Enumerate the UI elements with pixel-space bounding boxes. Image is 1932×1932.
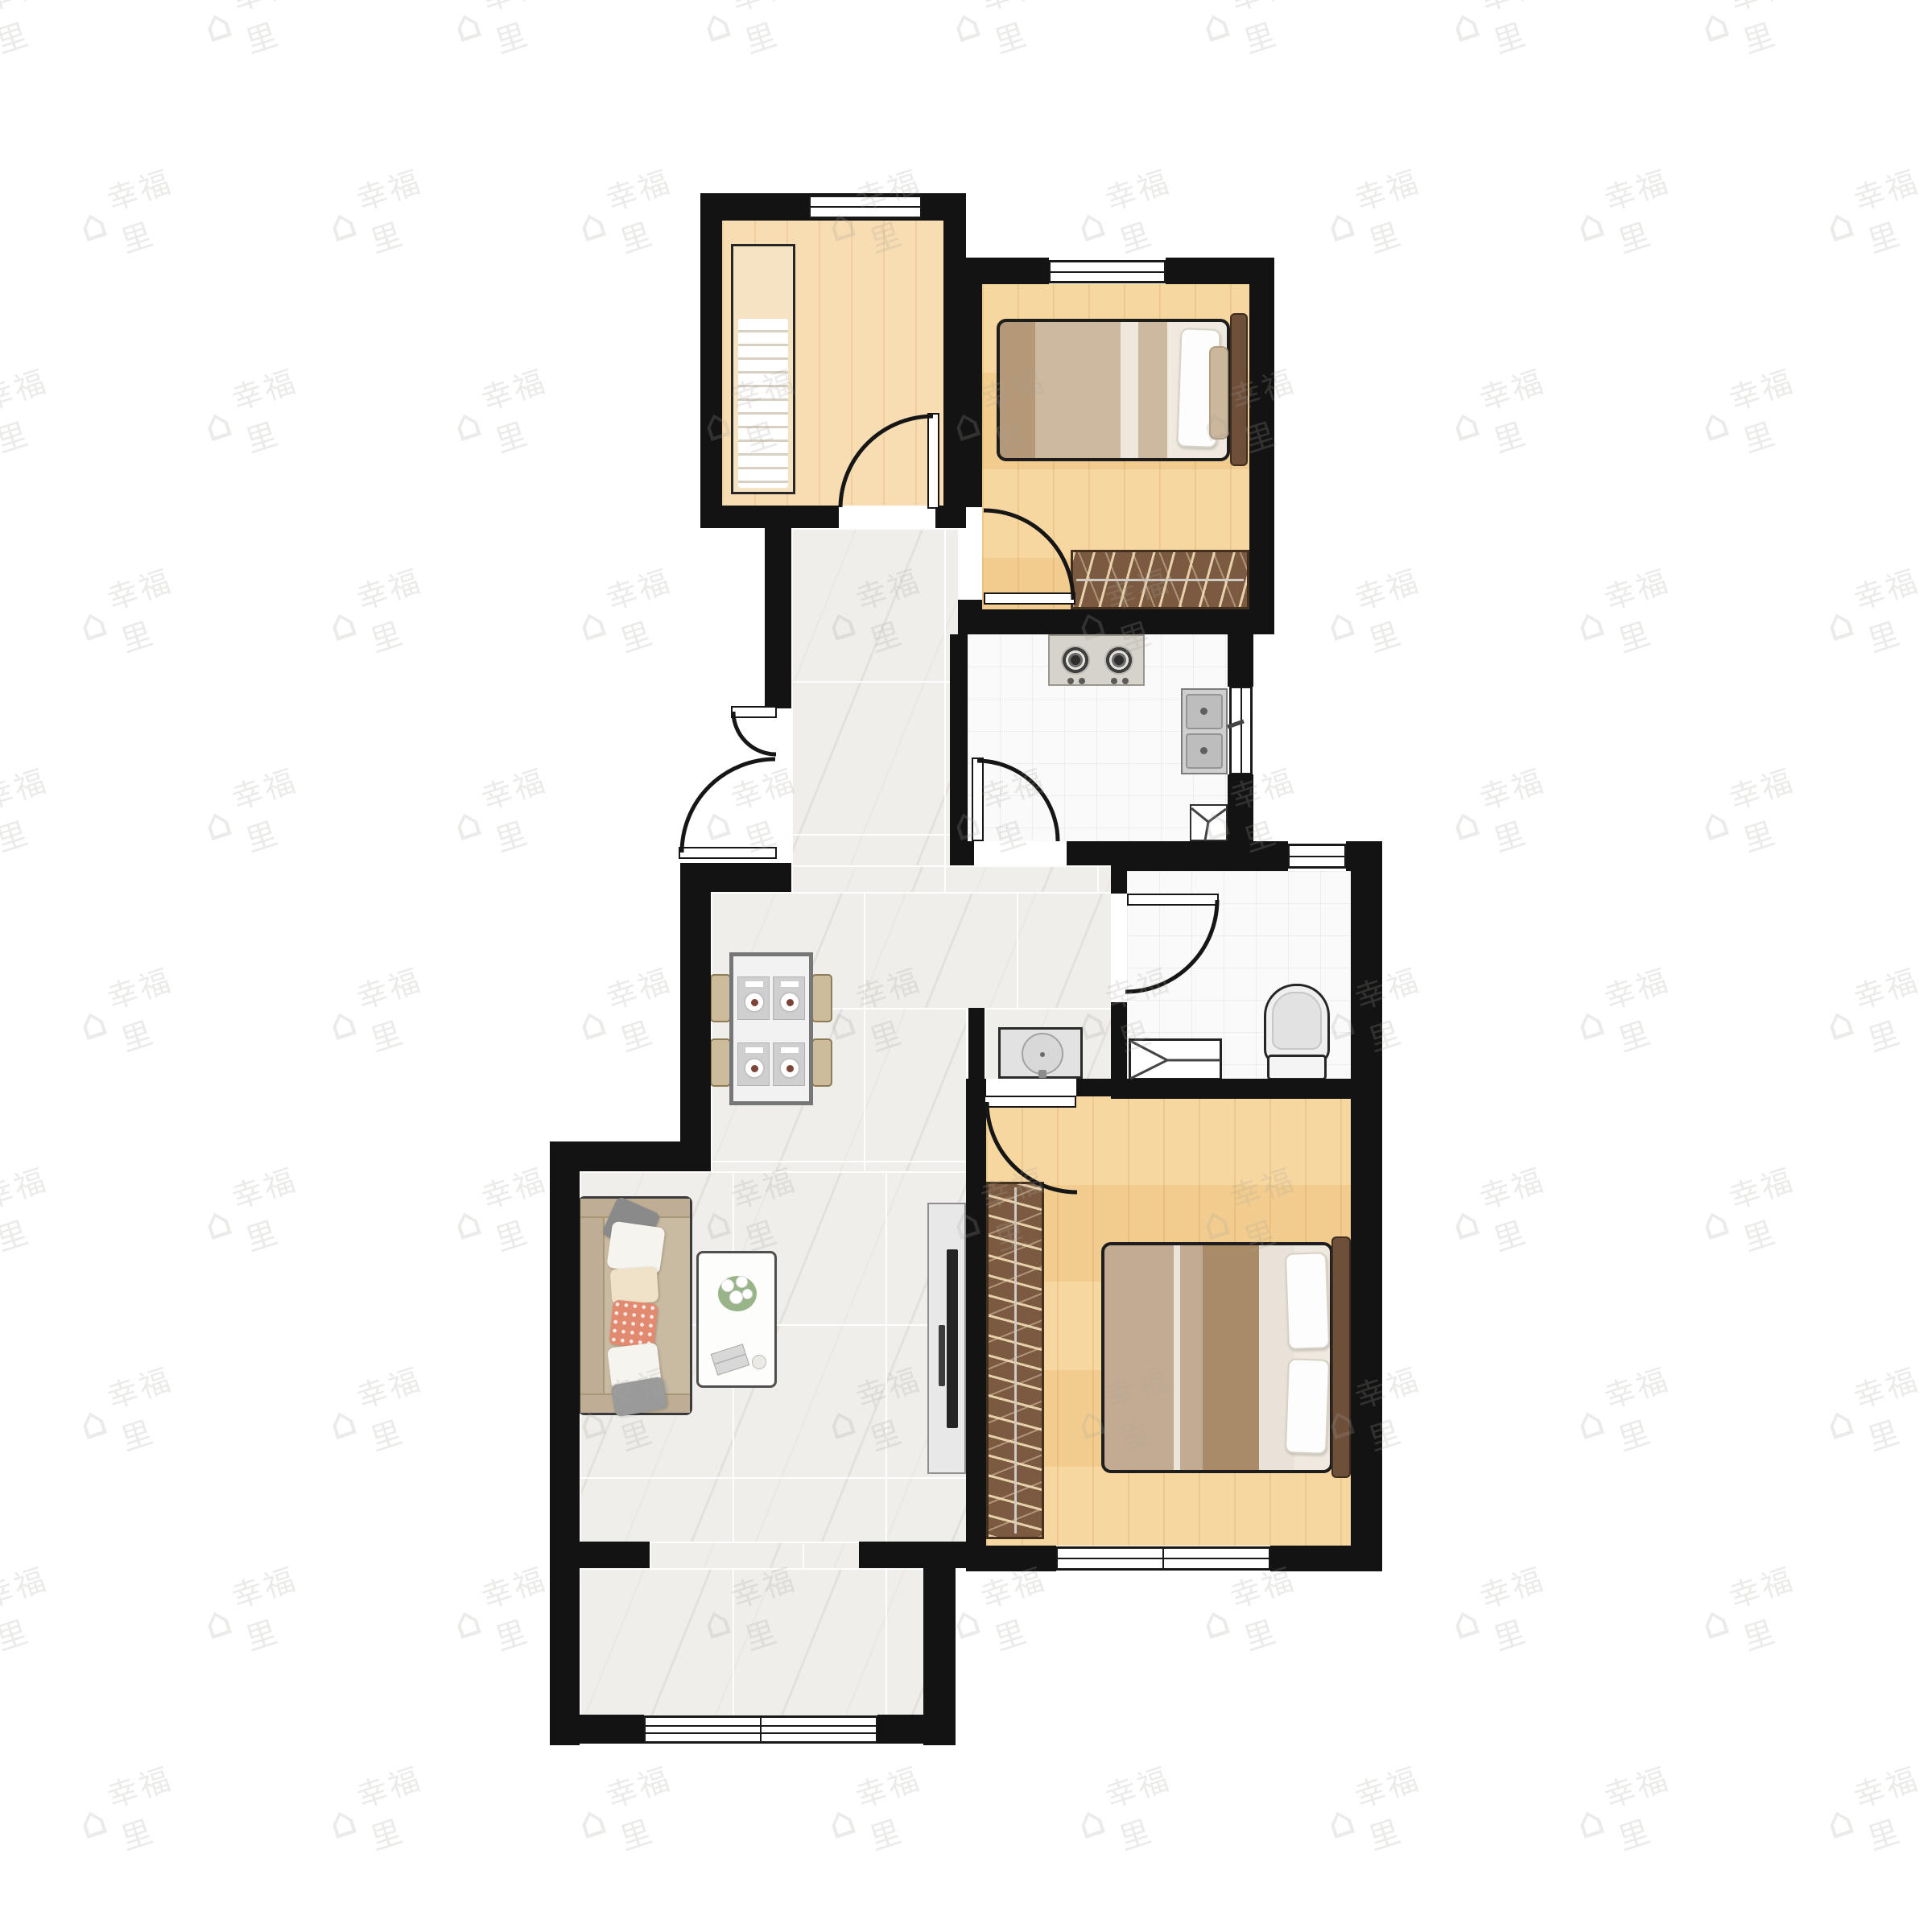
house-icon: ⌂ — [1197, 2, 1235, 50]
kitchen-window — [1229, 687, 1253, 774]
house-icon: ⌂ — [1696, 1199, 1734, 1248]
sink-drain — [1200, 747, 1207, 754]
sink-drain — [1200, 708, 1207, 715]
wall — [1270, 1546, 1382, 1571]
watermark-text: 幸福里 — [101, 151, 209, 261]
house-icon: ⌂ — [199, 1199, 237, 1248]
watermark-text: 幸福里 — [225, 1548, 334, 1658]
watermark: ⌂幸福里 — [1439, 1548, 1579, 1662]
gas-stove — [1048, 634, 1145, 686]
watermark-text: 幸福里 — [600, 1748, 708, 1858]
watermark: ⌂幸福里 — [192, 1149, 332, 1262]
bed-bottom-pillow — [1285, 1252, 1330, 1350]
watermark: ⌂幸福里 — [67, 1748, 207, 1861]
watermark: ⌂幸福里 — [566, 550, 706, 663]
plate-food — [751, 999, 758, 1006]
watermark: ⌂幸福里 — [0, 350, 82, 464]
dining-chair — [710, 974, 731, 1022]
house-icon: ⌂ — [324, 201, 361, 250]
watermark: ⌂幸福里 — [0, 0, 82, 65]
house-icon: ⌂ — [1072, 201, 1110, 250]
watermark-text: 幸福里 — [1847, 151, 1932, 261]
house-icon: ⌂ — [1696, 800, 1734, 848]
watermark-text: 幸福里 — [1598, 550, 1707, 660]
house-icon: ⌂ — [199, 800, 237, 848]
kitchen-sink — [1181, 688, 1228, 774]
watermark-text: 幸福里 — [350, 151, 459, 261]
toilet-tank — [1267, 1055, 1327, 1080]
watermark: ⌂幸福里 — [441, 749, 581, 863]
wall — [765, 528, 791, 708]
house-icon: ⌂ — [448, 1599, 486, 1647]
placemat — [773, 1042, 805, 1086]
kitchen-corner-cabinet — [1190, 804, 1228, 841]
watermark: ⌂幸福里 — [67, 949, 207, 1063]
wall — [1351, 1079, 1382, 1571]
wall — [700, 506, 839, 528]
placemat — [737, 1042, 770, 1086]
watermark-text: 幸福里 — [1099, 1748, 1207, 1858]
house-icon: ⌂ — [199, 2, 237, 50]
watermark: ⌂幸福里 — [1439, 350, 1579, 464]
watermark-text: 幸福里 — [849, 1748, 958, 1858]
placemat — [773, 976, 805, 1020]
hallway-floor — [791, 528, 958, 865]
watermark-text: 幸福里 — [724, 0, 833, 62]
napkin — [780, 980, 799, 988]
sofa — [578, 1196, 692, 1415]
house-icon: ⌂ — [448, 800, 486, 848]
coffee-table — [696, 1251, 777, 1388]
house-icon: ⌂ — [1322, 201, 1360, 250]
toilet-seat — [1272, 992, 1322, 1050]
house-icon: ⌂ — [1571, 1399, 1609, 1447]
flower — [721, 1279, 734, 1292]
house-icon: ⌂ — [947, 2, 985, 50]
bed-top-headboard — [1230, 313, 1248, 466]
wall — [966, 1079, 986, 1571]
watermark-text: 幸福里 — [350, 949, 459, 1059]
watermark: ⌂幸福里 — [1315, 550, 1455, 663]
bedroom-top-wardrobe — [1071, 550, 1249, 609]
watermark-text: 幸福里 — [475, 350, 584, 460]
dining-chair — [811, 974, 832, 1022]
watermark: ⌂幸福里 — [67, 1348, 207, 1462]
napkin — [745, 1046, 764, 1054]
watermark: ⌂幸福里 — [1065, 1748, 1205, 1861]
sofa-pillow-coral — [609, 1299, 658, 1349]
wall — [859, 1542, 966, 1568]
shower-tray — [1129, 1038, 1222, 1080]
watermark: ⌂幸福里 — [316, 949, 456, 1063]
flower — [742, 1289, 753, 1299]
watermark: ⌂幸福里 — [1564, 1748, 1704, 1861]
watermark: ⌂幸福里 — [0, 749, 82, 863]
house-icon: ⌂ — [1571, 201, 1609, 250]
sofa-pillow-white — [606, 1221, 665, 1275]
watermark: ⌂幸福里 — [316, 550, 456, 663]
watermark: ⌂幸福里 — [1564, 550, 1704, 663]
watermark-text: 幸福里 — [1598, 1748, 1707, 1858]
watermark-text: 幸福里 — [600, 550, 708, 660]
watermark-text: 幸福里 — [350, 1748, 459, 1858]
house-icon: ⌂ — [199, 401, 237, 449]
plate-food — [786, 999, 794, 1006]
flower — [736, 1276, 748, 1288]
wall — [966, 1546, 1056, 1571]
wall — [935, 506, 964, 528]
watermark: ⌂幸福里 — [192, 749, 332, 863]
flower — [729, 1290, 743, 1304]
plate-food — [786, 1065, 794, 1072]
balcony-floor — [580, 1568, 923, 1715]
watermark: ⌂幸福里 — [1689, 350, 1829, 464]
study-window — [809, 195, 922, 219]
watermark: ⌂幸福里 — [1315, 151, 1455, 264]
tv-stand — [927, 1203, 966, 1474]
floorplan-canvas: ⌂幸福里⌂幸福里⌂幸福里⌂幸福里⌂幸福里⌂幸福里⌂幸福里⌂幸福里⌂幸福里⌂幸福里… — [0, 0, 1932, 1932]
watermark: ⌂幸福里 — [192, 0, 332, 65]
watermark: ⌂幸福里 — [192, 1548, 332, 1662]
bedroom-bottom-wardrobe — [986, 1182, 1044, 1539]
house-icon: ⌂ — [1821, 201, 1859, 250]
watermark-text: 幸福里 — [1099, 151, 1207, 261]
house-icon: ⌂ — [1821, 1399, 1859, 1447]
watermark: ⌂幸福里 — [1689, 1548, 1829, 1662]
watermark: ⌂幸福里 — [67, 550, 207, 663]
house-icon: ⌂ — [1696, 401, 1734, 449]
wall — [1111, 841, 1288, 871]
watermark-text: 幸福里 — [475, 0, 584, 62]
watermark-text: 幸福里 — [101, 550, 209, 660]
watermark-text: 幸福里 — [1598, 1348, 1707, 1459]
wall — [1111, 871, 1127, 894]
watermark-text: 幸福里 — [1473, 350, 1582, 460]
stove-knob — [1067, 678, 1074, 684]
house-icon: ⌂ — [74, 1798, 112, 1847]
watermark-text: 幸福里 — [1723, 350, 1831, 460]
study-door — [927, 413, 939, 509]
watermark: ⌂幸福里 — [67, 151, 207, 264]
house-icon: ⌂ — [1072, 1798, 1110, 1847]
watermark-text: 幸福里 — [1348, 1748, 1457, 1858]
house-icon: ⌂ — [1821, 601, 1859, 649]
watermark: ⌂幸福里 — [1190, 0, 1330, 65]
watermark-text: 幸福里 — [0, 0, 85, 62]
watermark: ⌂幸福里 — [441, 0, 581, 65]
wardrobe-rail — [1014, 1187, 1017, 1534]
stove-burner — [1058, 642, 1093, 678]
study-wardrobe — [731, 244, 795, 494]
watermark: ⌂幸福里 — [0, 1548, 82, 1662]
bedroom-bottom-window — [1056, 1546, 1270, 1571]
watermark-text: 幸福里 — [1847, 949, 1932, 1059]
watermark: ⌂幸福里 — [1315, 1748, 1455, 1861]
watermark-text: 幸福里 — [1473, 749, 1582, 860]
house-icon: ⌂ — [1447, 401, 1484, 449]
watermark: ⌂幸福里 — [0, 1149, 82, 1262]
watermark: ⌂幸福里 — [566, 1748, 706, 1861]
watermark: ⌂幸福里 — [1564, 151, 1704, 264]
house-icon: ⌂ — [1571, 601, 1609, 649]
wall — [958, 609, 1274, 634]
watermark-text: 幸福里 — [101, 1348, 209, 1459]
watermark-text: 幸福里 — [1473, 0, 1582, 62]
bedroom-top-door — [984, 592, 1075, 605]
watermark-text: 幸福里 — [1348, 151, 1457, 261]
tv-soundbar — [939, 1325, 945, 1386]
watermark: ⌂幸福里 — [566, 151, 706, 264]
bedroom-top-window — [1049, 260, 1166, 283]
placemat — [737, 976, 770, 1020]
wall — [700, 193, 722, 528]
wall — [680, 863, 711, 1143]
wall — [968, 1008, 985, 1096]
house-icon: ⌂ — [74, 201, 112, 250]
wall — [950, 634, 968, 865]
house-icon: ⌂ — [1447, 2, 1484, 50]
house-icon: ⌂ — [1447, 1599, 1484, 1647]
house-icon: ⌂ — [1696, 2, 1734, 50]
watermark-text: 幸福里 — [0, 749, 85, 860]
wall — [950, 841, 974, 865]
watermark-text: 幸福里 — [1723, 1149, 1831, 1259]
wardrobe-rail — [1076, 579, 1244, 581]
watermark: ⌂幸福里 — [1814, 151, 1932, 264]
watermark: ⌂幸福里 — [1814, 1348, 1932, 1462]
bedroom-bottom-door — [984, 1096, 1076, 1108]
stove-knob — [1111, 678, 1117, 684]
watermark-text: 幸福里 — [101, 1748, 209, 1858]
book — [711, 1344, 750, 1376]
house-icon: ⌂ — [324, 1000, 361, 1048]
watermark-text: 幸福里 — [1847, 1748, 1932, 1858]
watermark: ⌂幸福里 — [1564, 949, 1704, 1063]
watermark: ⌂幸福里 — [940, 0, 1080, 65]
wall — [1076, 1079, 1382, 1096]
tv-screen — [947, 1249, 958, 1428]
watermark-text: 幸福里 — [0, 1149, 85, 1259]
house-icon: ⌂ — [573, 601, 611, 649]
watermark: ⌂幸福里 — [316, 1348, 456, 1462]
house-icon: ⌂ — [74, 601, 112, 649]
dining-table — [729, 952, 813, 1105]
watermark-text: 幸福里 — [0, 1548, 85, 1658]
wall — [1228, 634, 1253, 687]
watermark-text: 幸福里 — [225, 1149, 334, 1259]
watermark-text: 幸福里 — [1723, 0, 1831, 62]
watermark-text: 幸福里 — [1723, 749, 1831, 860]
watermark-text: 幸福里 — [1598, 949, 1707, 1059]
watermark: ⌂幸福里 — [316, 151, 456, 264]
wardrobe-shelves — [738, 319, 788, 488]
kitchen-door — [972, 758, 984, 841]
watermark: ⌂幸福里 — [1439, 1149, 1579, 1262]
watermark: ⌂幸福里 — [691, 0, 831, 65]
watermark-text: 幸福里 — [1847, 1348, 1932, 1459]
watermark-text: 幸福里 — [974, 0, 1083, 62]
hallway-floor — [791, 865, 1111, 892]
wall — [550, 1171, 580, 1745]
house-icon: ⌂ — [74, 1000, 112, 1048]
sofa-pillow-cream — [610, 1266, 659, 1305]
wall — [580, 1542, 650, 1568]
stove-knob — [1079, 678, 1085, 684]
bed-bottom-pillow — [1285, 1358, 1330, 1455]
house-icon: ⌂ — [823, 1798, 861, 1847]
house-icon: ⌂ — [448, 2, 486, 50]
watermark: ⌂幸福里 — [192, 350, 332, 464]
watermark-text: 幸福里 — [225, 350, 334, 460]
house-icon: ⌂ — [1197, 1599, 1235, 1647]
washbasin-drain — [1040, 1052, 1045, 1057]
watermark-text: 幸福里 — [101, 949, 209, 1059]
house-icon: ⌂ — [324, 601, 361, 649]
watermark: ⌂幸福里 — [441, 350, 581, 464]
house-icon: ⌂ — [1447, 800, 1484, 848]
wall — [550, 1715, 644, 1744]
bathroom-window — [1288, 844, 1346, 869]
coaster — [752, 1355, 766, 1369]
watermark-text: 幸福里 — [225, 0, 334, 62]
house-icon: ⌂ — [1571, 1798, 1609, 1847]
house-icon: ⌂ — [448, 1199, 486, 1248]
house-icon: ⌂ — [1322, 601, 1360, 649]
house-icon: ⌂ — [324, 1798, 361, 1847]
bed-top-pillow-tan — [1209, 346, 1228, 440]
house-icon: ⌂ — [573, 201, 611, 250]
watermark: ⌂幸福里 — [1689, 1149, 1829, 1262]
wall — [877, 1715, 923, 1744]
toilet — [1264, 984, 1330, 1080]
watermark: ⌂幸福里 — [1689, 749, 1829, 863]
washbasin-counter — [998, 1027, 1083, 1079]
watermark-text: 幸福里 — [1473, 1548, 1582, 1658]
watermark-text: 幸福里 — [350, 1348, 459, 1459]
stove-knob — [1122, 678, 1129, 684]
watermark-text: 幸福里 — [350, 550, 459, 660]
watermark: ⌂幸福里 — [1065, 151, 1205, 264]
house-icon: ⌂ — [1447, 1199, 1484, 1248]
watermark: ⌂幸福里 — [1689, 0, 1829, 65]
balcony-window — [644, 1715, 877, 1744]
bathroom-door — [1127, 894, 1219, 906]
wall — [550, 1141, 711, 1171]
watermark-text: 幸福里 — [1598, 151, 1707, 261]
dining-chair — [811, 1038, 832, 1087]
bed-bottom-headboard — [1331, 1236, 1351, 1478]
house-icon: ⌂ — [573, 1798, 611, 1847]
watermark: ⌂幸福里 — [1439, 749, 1579, 863]
entry-door-small — [731, 706, 777, 718]
watermark: ⌂幸福里 — [1814, 550, 1932, 663]
wall — [923, 1568, 956, 1745]
watermark-text: 幸福里 — [225, 749, 334, 860]
watermark: ⌂幸福里 — [1814, 1748, 1932, 1861]
house-icon: ⌂ — [74, 1399, 112, 1447]
watermark-text: 幸福里 — [475, 749, 584, 860]
watermark: ⌂幸福里 — [1439, 0, 1579, 65]
watermark-text: 幸福里 — [1847, 550, 1932, 660]
entry-door-main — [679, 847, 777, 859]
watermark: ⌂幸福里 — [1814, 949, 1932, 1063]
house-icon: ⌂ — [1821, 1798, 1859, 1847]
house-icon: ⌂ — [1696, 1599, 1734, 1647]
house-icon: ⌂ — [448, 401, 486, 449]
house-icon: ⌂ — [1821, 1000, 1859, 1048]
sofa-backrest — [580, 1199, 605, 1413]
watermark-text: 幸福里 — [1723, 1548, 1831, 1658]
watermark-text: 幸福里 — [600, 151, 708, 261]
watermark: ⌂幸福里 — [815, 1748, 956, 1861]
house-icon: ⌂ — [698, 800, 736, 848]
napkin — [745, 980, 764, 988]
watermark-text: 幸福里 — [1224, 0, 1332, 62]
balcony-passage-floor — [650, 1542, 859, 1568]
house-icon: ⌂ — [1571, 1000, 1609, 1048]
watermark: ⌂幸福里 — [316, 1748, 456, 1861]
washbasin-faucet — [1038, 1070, 1046, 1078]
house-icon: ⌂ — [1322, 1798, 1360, 1847]
entry-main-door-arc — [682, 759, 775, 852]
plate-food — [751, 1065, 758, 1072]
house-icon: ⌂ — [199, 1599, 237, 1647]
wall — [1351, 841, 1382, 1099]
house-icon: ⌂ — [324, 1399, 361, 1447]
napkin — [780, 1046, 799, 1054]
watermark-text: 幸福里 — [0, 350, 85, 460]
house-icon: ⌂ — [698, 2, 736, 50]
house-icon: ⌂ — [573, 1000, 611, 1048]
watermark: ⌂幸福里 — [1564, 1348, 1704, 1462]
wall — [1249, 258, 1274, 634]
dining-chair — [710, 1038, 731, 1087]
watermark-text: 幸福里 — [1348, 550, 1457, 660]
wall — [958, 258, 982, 507]
stove-burner — [1101, 642, 1137, 678]
watermark-text: 幸福里 — [1473, 1149, 1582, 1259]
